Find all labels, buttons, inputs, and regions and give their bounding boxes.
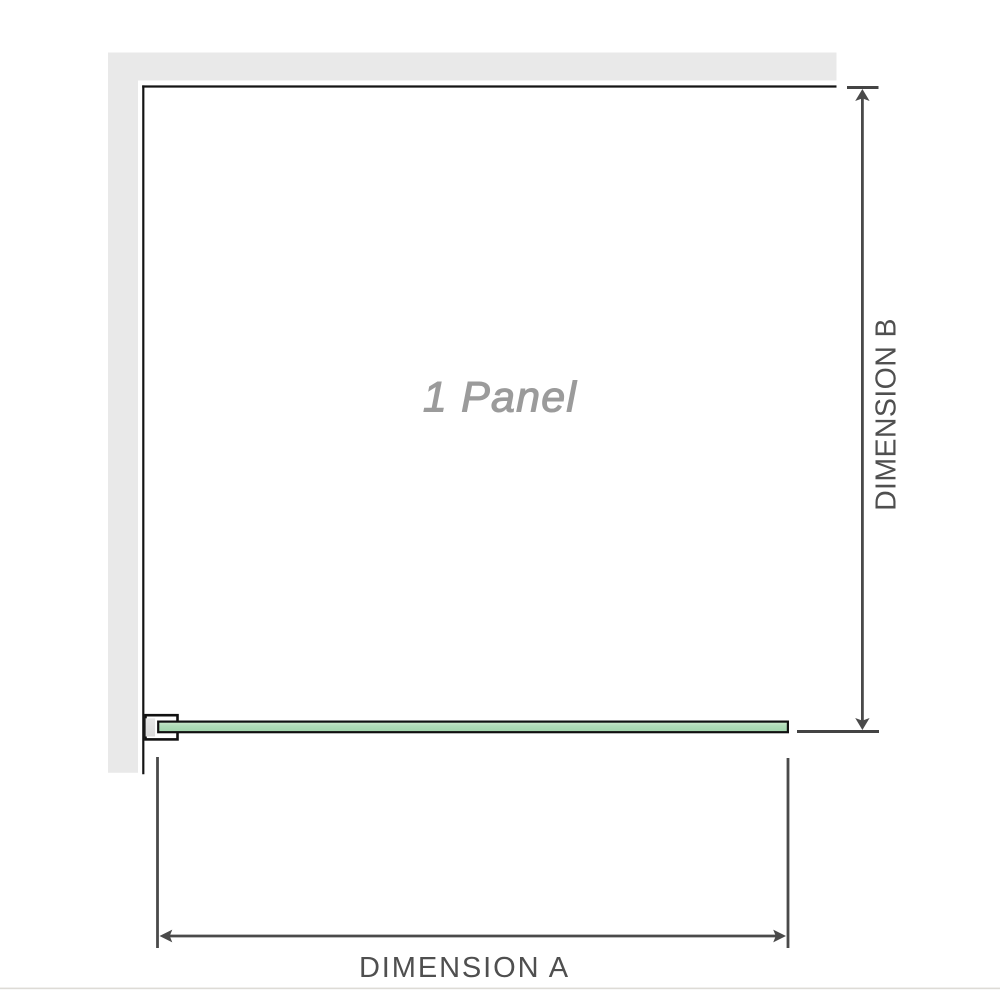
svg-text:1 Panel: 1 Panel	[423, 374, 577, 422]
svg-text:DIMENSION A: DIMENSION A	[359, 952, 570, 984]
svg-text:DIMENSION B: DIMENSION B	[871, 318, 903, 511]
